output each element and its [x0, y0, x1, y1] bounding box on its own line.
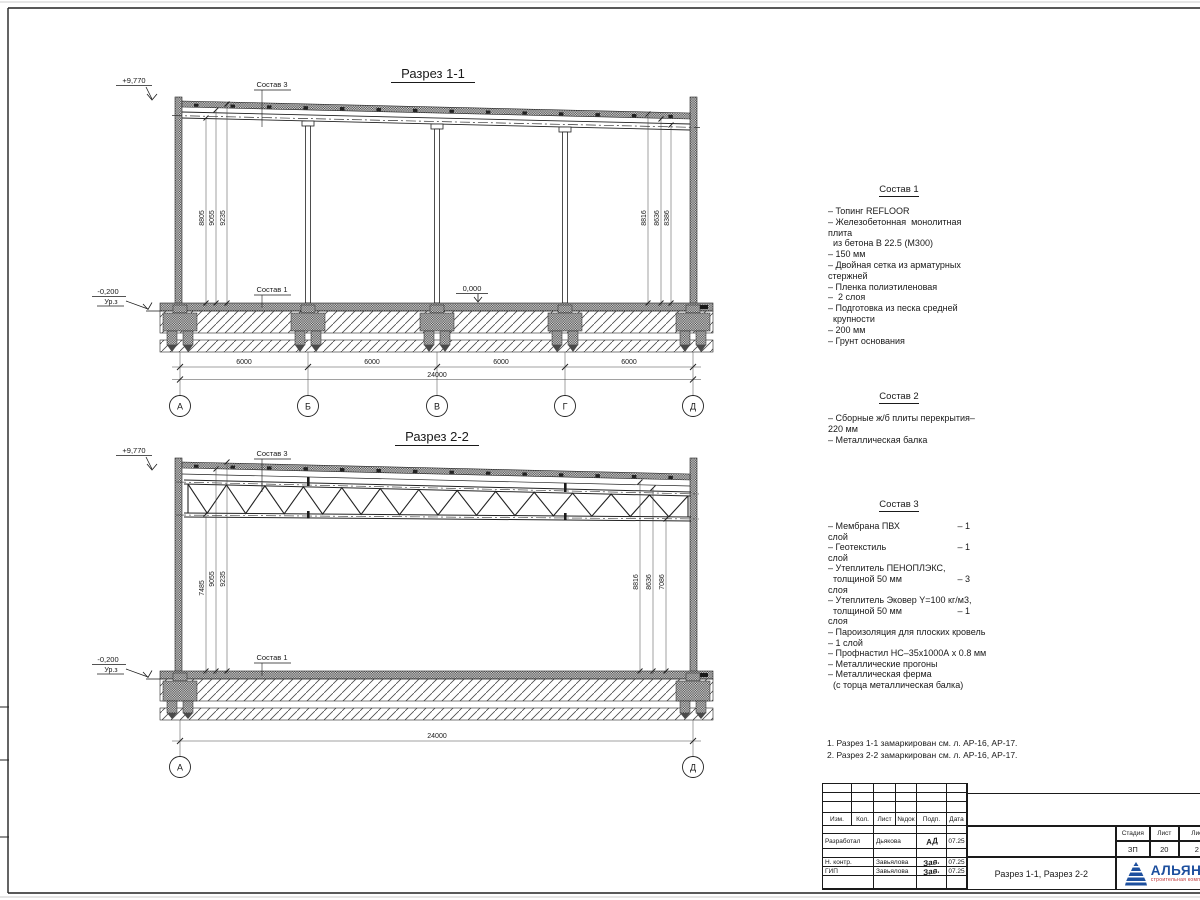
right-wall: [690, 458, 697, 679]
sheets-label: Лис: [1179, 826, 1200, 841]
stamp-date: 07.25: [947, 834, 967, 849]
stamp-header-cell: Кол.: [852, 813, 874, 826]
dim-label: 8636: [654, 210, 661, 226]
axis-bubbles: [170, 757, 704, 778]
sections-drawing: Разрез 1-1: [0, 0, 1200, 900]
legend-line: – Двойная сетка из арматурных: [828, 260, 970, 271]
title-block: Изм. Кол. Лист №док Подп. Дата Разработа…: [822, 783, 1200, 890]
legend-line: – Металлические прогоны: [828, 659, 970, 670]
stamp-revision-table: Изм. Кол. Лист №док Подп. Дата Разработа…: [822, 783, 968, 890]
dim-label: 8386: [664, 210, 671, 226]
dim-total: 24000: [427, 372, 447, 379]
legend-line: слой: [828, 532, 970, 543]
legend-sostav1: Состав 1 – Топинг REFLOOR – Железобетонн…: [828, 179, 970, 346]
roof-slab: [182, 101, 690, 119]
legend-line: – Геотекстиль– 1: [828, 542, 970, 553]
section-1-1: Разрез 1-1: [92, 66, 713, 417]
stamp-name: Дьякова: [874, 834, 917, 849]
stamp-empty-cell: [967, 826, 1116, 857]
stamp-role: ГИП: [823, 867, 874, 876]
legend-line: – Топинг REFLOOR: [828, 206, 970, 217]
stamp-doc-title: Разрез 1-1, Разрез 2-2: [967, 857, 1116, 890]
note-line: 1. Разрез 1-1 замаркирован см. л. АР-16,…: [827, 738, 1197, 750]
axis-label: А: [177, 763, 183, 773]
stamp-signature: Зав.: [917, 867, 947, 876]
sheets-total: 2: [1179, 841, 1200, 857]
legend-line: слоя: [828, 585, 970, 596]
stamp-header-cell: Изм.: [823, 813, 852, 826]
legend-line: – 2 слоя: [828, 292, 970, 303]
ground-level-label: Ур.з: [104, 667, 117, 674]
legend-line: толщиной 50 мм– 3: [828, 574, 970, 585]
legend-line: – Металлическая ферма: [828, 669, 970, 680]
sheet-label: Лист: [1150, 826, 1179, 841]
dim-span: 6000: [364, 359, 380, 366]
callout-sostav3: Состав 3: [256, 80, 287, 89]
elevation-ground: -0,200: [97, 655, 118, 664]
legend-line: (с торца металлическая балка): [828, 680, 970, 691]
dim-label: 8636: [646, 574, 653, 590]
dim-label: 7086: [659, 574, 666, 590]
dim-span: 6000: [236, 359, 252, 366]
sheet-number: 20: [1150, 841, 1179, 857]
legend-line: из бетона В 22.5 (М300): [828, 238, 970, 249]
section-2-title: Разрез 2-2: [405, 429, 469, 444]
left-wall: [175, 458, 182, 679]
legend-line: 220 мм: [828, 424, 970, 435]
stadia-label: Стадия: [1116, 826, 1150, 841]
logo-tagline: строительная комп: [1151, 877, 1200, 883]
stamp-signature: АД: [917, 834, 947, 849]
stamp-name: Завьялова: [874, 867, 917, 876]
legend-line: – Грунт основания: [828, 336, 970, 347]
stamp-date: 07.25: [947, 867, 967, 876]
legend-line: – 200 мм: [828, 325, 970, 336]
legend-line: стержней: [828, 271, 970, 282]
callout-sostav1: Состав 1: [256, 285, 287, 294]
callout-sostav3: Состав 3: [256, 449, 287, 458]
elevation-zero: 0,000: [463, 284, 482, 293]
axis-label: А: [177, 402, 183, 412]
dims-left: [204, 460, 230, 675]
axis-label: Д: [690, 763, 696, 773]
dim-label: 9055: [209, 210, 216, 226]
logo-name: АЛЬЯН: [1151, 865, 1200, 877]
legend-line: – Металлическая балка: [828, 435, 970, 446]
elevation-ground: -0,200: [97, 287, 118, 296]
stamp-role: Разработал: [823, 834, 874, 849]
legend-sostav3-title: Состав 3: [879, 499, 918, 512]
axis-label: Д: [690, 402, 696, 412]
legend-line: крупности: [828, 314, 970, 325]
legend-line: – Утеплитель ПЕНОПЛЭКС,: [828, 563, 970, 574]
legend-sostav3: Состав 3 – Мембрана ПВХ– 1 слой – Геотек…: [828, 494, 970, 691]
legend-sostav2-title: Состав 2: [879, 391, 918, 404]
dim-label: 8816: [633, 574, 640, 590]
legend-line: – Пароизоляция для плоских кровель: [828, 627, 970, 638]
drawing-sheet: Разрез 1-1: [0, 0, 1200, 900]
dim-span: 6000: [493, 359, 509, 366]
dims-right: [646, 112, 674, 307]
elevation-top: +9,770: [122, 446, 145, 455]
stamp-header-cell: №док: [896, 813, 917, 826]
axis-label: Г: [563, 402, 568, 412]
legend-line: слоя: [828, 616, 970, 627]
legend-line: слой: [828, 553, 970, 564]
dim-label: 8816: [641, 210, 648, 226]
section-2-2: Разрез 2-2: [92, 429, 713, 778]
stamp-signature: Зав.: [917, 858, 947, 867]
legend-line: – 150 мм: [828, 249, 970, 260]
foundation: [160, 305, 713, 352]
stamp-name: Завьялова: [874, 858, 917, 867]
ground-level-label: Ур.з: [104, 299, 117, 306]
callout-sostav1: Состав 1: [256, 653, 287, 662]
left-wall: [175, 97, 182, 311]
logo-pyramid-icon: [1125, 862, 1147, 886]
dim-span: 6000: [621, 359, 637, 366]
stamp-header-cell: Подп.: [917, 813, 947, 826]
roof-slab: [182, 462, 690, 480]
right-wall: [690, 97, 697, 311]
stamp-header-cell: Лист: [874, 813, 896, 826]
legend-line: – Подготовка из песка средней: [828, 303, 970, 314]
legend-sostav1-title: Состав 1: [879, 184, 918, 197]
legend-line: – Сборные ж/б плиты перекрытия–: [828, 413, 970, 424]
legend-line: – Пленка полиэтиленовая: [828, 282, 970, 293]
stamp-role: Н. контр.: [823, 858, 874, 867]
stamp-designation-cell: [967, 793, 1200, 826]
dim-label: 7485: [199, 580, 206, 596]
elevation-top: +9,770: [122, 76, 145, 85]
columns: [302, 121, 571, 303]
sheet-notes: 1. Разрез 1-1 замаркирован см. л. АР-16,…: [827, 738, 1197, 761]
stadia-value: ЗП: [1116, 841, 1150, 857]
legend-sostav2: Состав 2 – Сборные ж/б плиты перекрытия–…: [828, 386, 970, 445]
legend-line: – Профнастил НС–35х1000А х 0.8 мм: [828, 648, 970, 659]
legend-line: – Мембрана ПВХ– 1: [828, 521, 970, 532]
legend-line: – 1 слой: [828, 638, 970, 649]
roof-truss: [176, 477, 699, 521]
note-line: 2. Разрез 2-2 замаркирован см. л. АР-16,…: [827, 750, 1197, 762]
section-1-title: Разрез 1-1: [401, 66, 465, 81]
foundation: [160, 673, 713, 720]
axis-label: В: [434, 402, 440, 412]
legend-line: плита: [828, 228, 970, 239]
floor-slab: [160, 671, 713, 679]
dim-label: 9055: [209, 571, 216, 587]
stamp-header-cell: Дата: [947, 813, 967, 826]
legend-line: толщиной 50 мм– 1: [828, 606, 970, 617]
axis-label: Б: [305, 402, 311, 412]
dim-total: 24000: [427, 733, 447, 740]
dim-label: 9235: [220, 571, 227, 587]
dim-label: 8805: [199, 210, 206, 226]
dims-left: [204, 102, 230, 307]
legend-line: – Утеплитель Эковер Y=100 кг/м3,: [828, 595, 970, 606]
dim-label: 9235: [220, 210, 227, 226]
stamp-date: 07.25: [947, 858, 967, 867]
company-logo: АЛЬЯН строительная комп: [1116, 857, 1200, 890]
legend-line: – Железобетонная монолитная: [828, 217, 970, 228]
